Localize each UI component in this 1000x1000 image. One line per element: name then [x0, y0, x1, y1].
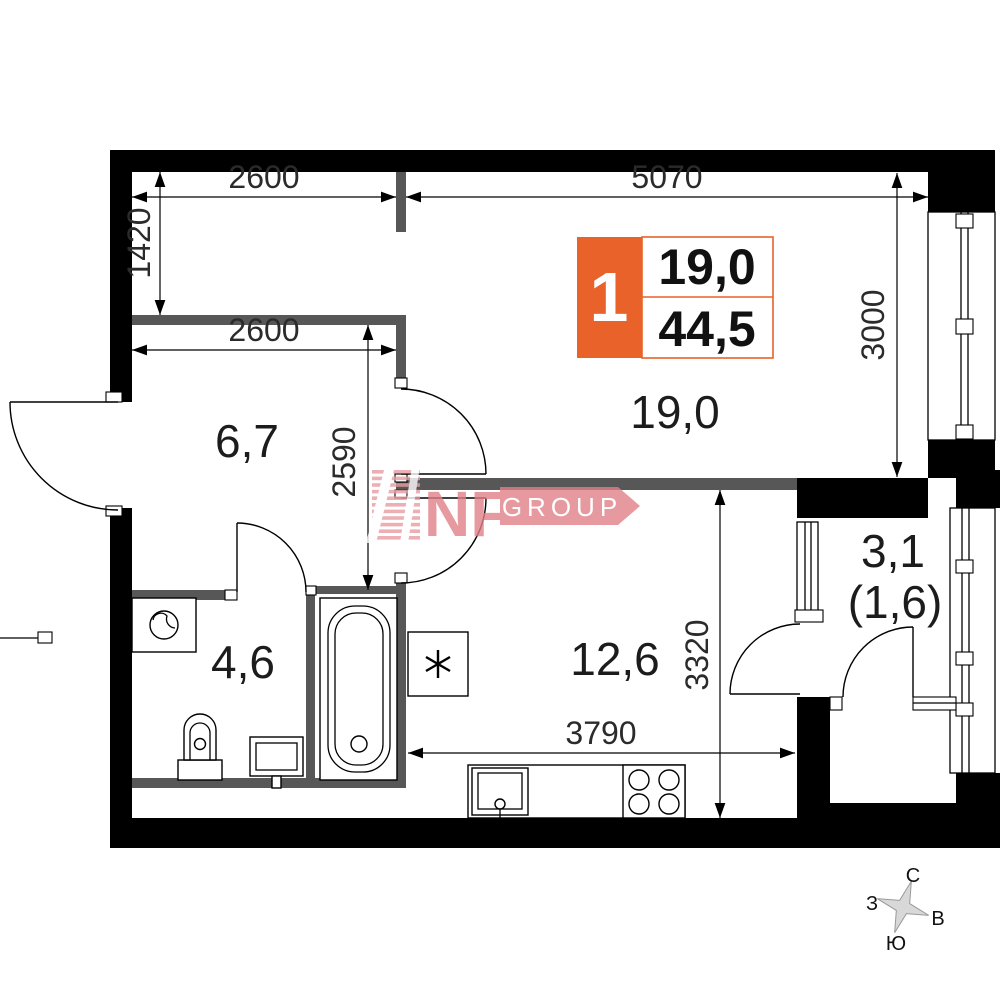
unit-info-box: 1 19,0 44,5 — [577, 237, 773, 358]
kitchen-sink — [472, 768, 528, 818]
bathroom-door — [237, 523, 306, 592]
watermark-suffix: GROUP — [502, 492, 622, 522]
toilet — [178, 714, 222, 780]
dim-hall-width: 2600 — [228, 312, 299, 348]
dim-hall-height: 2590 — [326, 426, 362, 497]
floor-plan-svg: 2600 5070 1420 2600 2590 3000 3320 3790 … — [0, 0, 1000, 1000]
balcony-east-glazing — [950, 508, 995, 773]
unit-total-area: 44,5 — [658, 301, 755, 357]
room-label-bathroom: 4,6 — [211, 636, 275, 688]
room-label-balcony: 3,1 — [861, 525, 925, 577]
stove — [623, 765, 685, 818]
dim-kitchen-height: 3320 — [679, 619, 715, 690]
watermark-brand: NF — [424, 478, 509, 550]
nf-logo-icon — [366, 466, 420, 543]
unit-number: 1 — [590, 258, 629, 336]
compass-south: Ю — [886, 933, 906, 955]
room-label-hall: 6,7 — [215, 415, 279, 467]
bathtub — [320, 598, 397, 780]
compass-east: В — [931, 908, 944, 930]
living-window — [928, 212, 995, 440]
dim-alcove-width: 2600 — [228, 159, 299, 195]
dim-alcove-height: 1420 — [121, 207, 157, 278]
dim-window-side: 3000 — [855, 289, 891, 360]
compass-west: З — [866, 893, 878, 915]
fridge — [408, 632, 468, 696]
dim-kitchen-width: 3790 — [565, 715, 636, 751]
compass: С В Ю З — [866, 865, 945, 955]
balcony-divider-partition — [830, 697, 956, 710]
balcony-door — [730, 624, 800, 694]
living-room-door — [401, 389, 486, 474]
entrance-door — [10, 402, 118, 510]
balcony-west-glazing — [795, 522, 823, 622]
kitchen-counter — [468, 765, 685, 818]
balcony-inner-door — [843, 627, 913, 697]
room-label-living: 19,0 — [630, 386, 720, 438]
floor-plan-page: 2600 5070 1420 2600 2590 3000 3320 3790 … — [0, 0, 1000, 1000]
dim-living-width: 5070 — [631, 159, 702, 195]
compass-north: С — [906, 865, 920, 887]
room-label-kitchen: 12,6 — [570, 633, 660, 685]
room-label-balcony-reduced: (1,6) — [848, 576, 943, 628]
compass-star — [869, 873, 937, 941]
unit-living-area: 19,0 — [658, 239, 755, 295]
washing-machine — [132, 598, 196, 652]
